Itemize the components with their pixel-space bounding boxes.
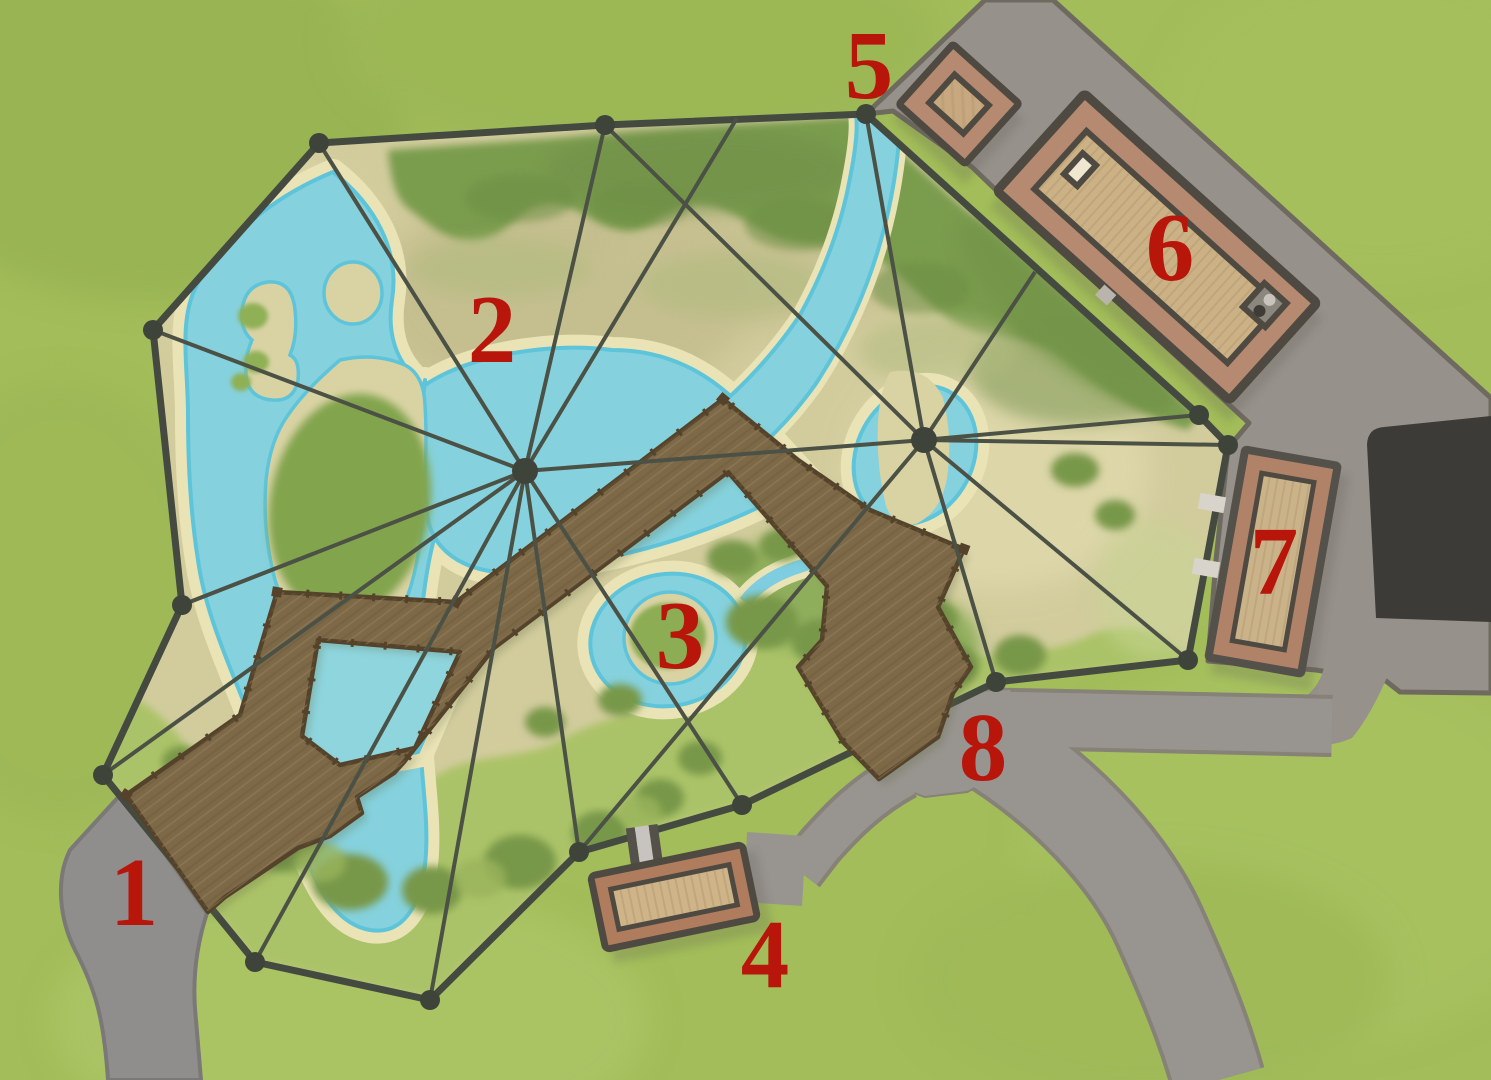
svg-text:1: 1 bbox=[110, 839, 159, 946]
svg-text:7: 7 bbox=[1250, 508, 1299, 615]
svg-text:3: 3 bbox=[656, 582, 705, 689]
svg-text:6: 6 bbox=[1146, 194, 1195, 301]
svg-text:4: 4 bbox=[741, 901, 790, 1008]
svg-text:5: 5 bbox=[845, 12, 894, 119]
svg-text:8: 8 bbox=[959, 694, 1008, 801]
svg-text:2: 2 bbox=[468, 276, 517, 383]
